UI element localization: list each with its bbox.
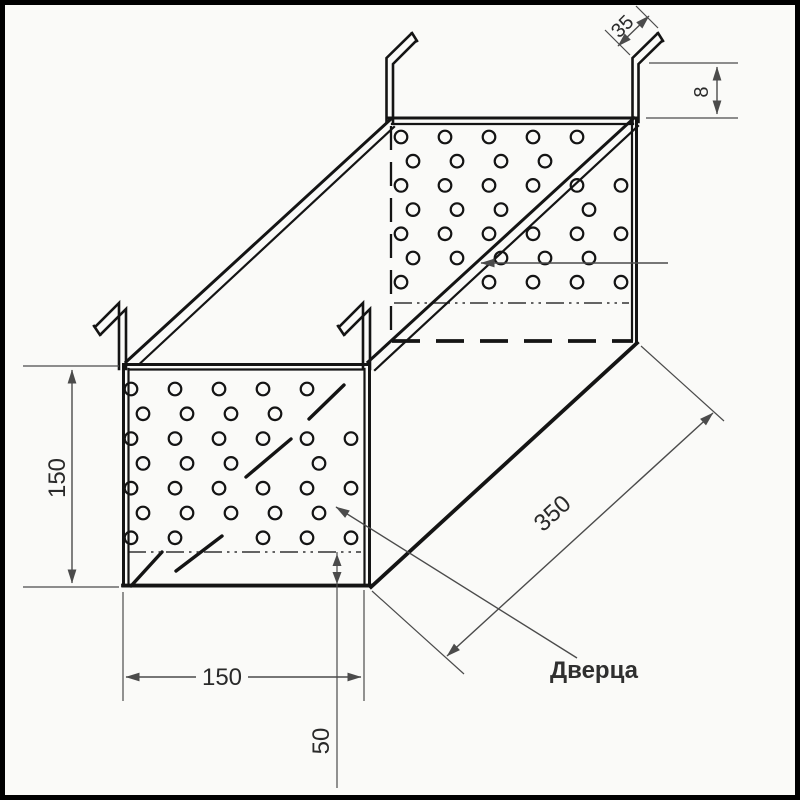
perforation-hole (181, 457, 194, 470)
perforation-hole (213, 383, 226, 396)
perforation-hole (527, 228, 540, 241)
perforation-hole (451, 155, 464, 168)
front-right-hook (338, 303, 370, 369)
dimension-hook-lip-35: 35 (605, 6, 658, 55)
perforation-hole (571, 228, 584, 241)
technical-drawing: 150 150 50 350 8 35 Дверца (0, 0, 800, 800)
perforation-hole (301, 383, 314, 396)
perforation-hole (125, 432, 138, 445)
perforation-hole (395, 179, 408, 192)
back-right-hook (633, 33, 664, 122)
perforation-hole (451, 203, 464, 216)
perforation-hole (407, 252, 420, 265)
perforation-hole (137, 457, 150, 470)
perforation-hole (483, 276, 496, 289)
perforation-hole (169, 482, 182, 495)
perforation-hole (257, 532, 270, 545)
perforation-hole (495, 203, 508, 216)
perforation-hole (125, 482, 138, 495)
perforation-hole (301, 432, 314, 445)
perforation-hole (137, 507, 150, 520)
perforation-hole (483, 179, 496, 192)
perforation-hole (125, 532, 138, 545)
perforation-hole (407, 203, 420, 216)
perforation-hole (571, 131, 584, 144)
perforation-hole (301, 482, 314, 495)
door-callout: Дверца (336, 507, 639, 684)
front-left-hook-end-cap (94, 326, 100, 335)
perforation-hole (213, 482, 226, 495)
perforation-hole (439, 228, 452, 241)
perforation-hole (313, 507, 326, 520)
back-right-hook-end-cap (658, 33, 663, 41)
perforation-hole (395, 131, 408, 144)
dim-text-hook-offset: 8 (691, 86, 713, 97)
perforation-hole (615, 179, 628, 192)
perforation-hole (269, 507, 282, 520)
perforation-hole (169, 432, 182, 445)
image-frame: 150 150 50 350 8 35 Дверца (0, 0, 800, 800)
perforation-hole (571, 276, 584, 289)
back-left-hook-end-cap (412, 33, 417, 41)
perforation-hole (125, 383, 138, 396)
perforation-hole (213, 432, 226, 445)
right-wall-bottom-edge (371, 343, 637, 587)
perforation-hole (527, 131, 540, 144)
perforation-hole (257, 432, 270, 445)
perforation-hole (395, 228, 408, 241)
perforation-hole (225, 457, 238, 470)
perforation-hole (439, 179, 452, 192)
perforation-hole (181, 507, 194, 520)
dimension-depth-350: 350 (372, 346, 724, 674)
dimension-hook-offset-8: 8 (646, 63, 738, 118)
perforation-hole (225, 507, 238, 520)
perforation-hole (313, 457, 326, 470)
perforation-hole (269, 408, 282, 421)
perforation-hole (451, 252, 464, 265)
perforation-hole (539, 155, 552, 168)
perforation-hole (615, 228, 628, 241)
perforation-hole (407, 155, 420, 168)
dimension-height-150: 150 (23, 366, 119, 587)
perforation-hole (137, 408, 150, 421)
perforation-hole (483, 228, 496, 241)
front-door-panel (123, 365, 370, 587)
perforation-hole (527, 179, 540, 192)
perforation-hole (257, 383, 270, 396)
perforation-hole (345, 482, 358, 495)
front-left-hook (94, 303, 126, 369)
perforation-hole (345, 432, 358, 445)
dim-text-width: 150 (202, 664, 242, 691)
dim-text-height: 150 (44, 458, 71, 498)
dim-text-hook-lip: 35 (607, 11, 638, 42)
door-label: Дверца (550, 657, 639, 684)
perforation-hole (181, 408, 194, 421)
perforation-hole (257, 482, 270, 495)
perforation-hole (615, 276, 628, 289)
perforation-hole (345, 532, 358, 545)
perforation-hole (527, 276, 540, 289)
dim-text-depth: 350 (529, 490, 577, 537)
dim-text-bottom-zone: 50 (308, 728, 335, 755)
perforation-hole (169, 383, 182, 396)
perforation-hole (495, 155, 508, 168)
perforation-hole (583, 203, 596, 216)
left-wall-top-edge (126, 119, 391, 362)
perforation-hole (169, 532, 182, 545)
dimension-width-150: 150 (123, 590, 364, 701)
perforation-hole (483, 131, 496, 144)
perforation-hole (395, 276, 408, 289)
front-right-hook-end-cap (338, 326, 344, 335)
perforation-hole (301, 532, 314, 545)
perforation-hole (439, 131, 452, 144)
left-wall-top-edge-inner (133, 127, 394, 370)
perforation-hole (225, 408, 238, 421)
back-left-hook (387, 33, 418, 122)
